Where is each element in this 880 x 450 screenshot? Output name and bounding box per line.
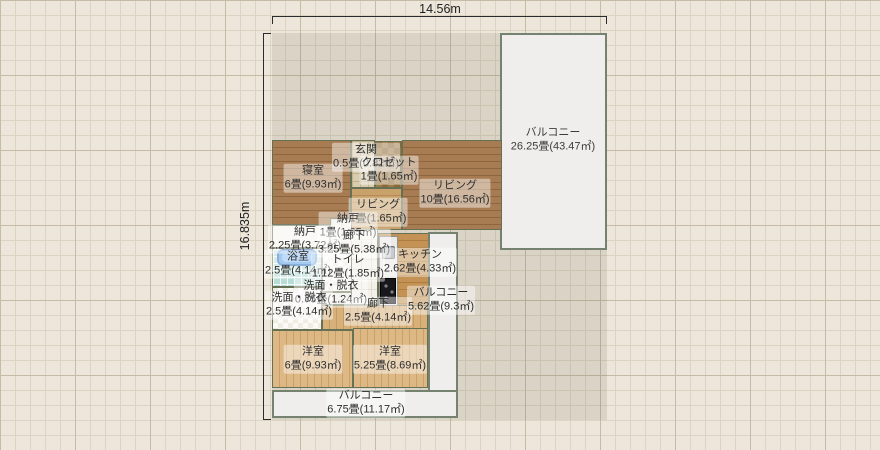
room-name: 納戸 xyxy=(320,212,377,226)
dimension-height-label: 16.835m xyxy=(238,195,252,257)
room-label-balcony-right: バルコニー5.62畳(9.3㎡) xyxy=(407,286,475,315)
room-name: クロゼット xyxy=(361,156,418,170)
room-label-living: リビング10畳(16.56㎡) xyxy=(419,179,490,208)
room-label-kitchen: キッチン2.62畳(4.33㎡) xyxy=(383,248,457,277)
dimension-width-label: 14.56m xyxy=(400,2,480,16)
room-area: 2.62畳(4.33㎡) xyxy=(384,262,456,276)
room-name: バルコニー xyxy=(511,126,595,140)
room-name: バルコニー xyxy=(408,286,474,300)
room-area: 6畳(9.93㎡) xyxy=(285,359,342,373)
room-name: 廊下 xyxy=(345,297,411,311)
room-name: キッチン xyxy=(384,248,456,262)
room-label-balcony-top: バルコニー26.25畳(43.47㎡) xyxy=(510,126,596,155)
room-name: 洋室 xyxy=(354,345,426,359)
room-label-balcony-bottom: バルコニー6.75畳(11.17㎡) xyxy=(326,389,405,418)
room-area: 2.5畳(4.14㎡) xyxy=(266,305,332,319)
room-name: リビング xyxy=(420,179,489,193)
room-area: 5.62畳(9.3㎡) xyxy=(408,300,474,314)
room-area: 1畳(1.65㎡) xyxy=(361,170,418,184)
room-area: 10畳(16.56㎡) xyxy=(420,193,489,207)
room-name: 廊下 xyxy=(318,229,390,243)
room-label-western-1: 洋室6畳(9.93㎡) xyxy=(284,345,343,374)
room-area: 6畳(9.93㎡) xyxy=(285,178,342,192)
room-label-washroom: 洗面・脱衣2.5畳(4.14㎡) xyxy=(265,291,333,320)
room-area: 6.75畳(11.17㎡) xyxy=(327,403,404,417)
room-area: 5.25畳(8.69㎡) xyxy=(354,359,426,373)
room-name: 洗面・脱衣 xyxy=(266,291,332,305)
room-label-closet: クロゼット1畳(1.65㎡) xyxy=(360,156,419,185)
dimension-line-width xyxy=(272,16,607,24)
room-area: 26.25畳(43.47㎡) xyxy=(511,140,595,154)
room-label-hallway-2: 廊下2.5畳(4.14㎡) xyxy=(344,297,412,326)
room-name: リビング xyxy=(350,198,407,212)
floorplan-canvas: { "dimensions": { "width_label": "14.56m… xyxy=(0,0,880,450)
room-name: バルコニー xyxy=(327,389,404,403)
room-name: 洋室 xyxy=(285,345,342,359)
room-name: トイレ xyxy=(312,253,384,267)
room-label-western-2: 洋室5.25畳(8.69㎡) xyxy=(353,345,427,374)
room-area: 2.5畳(4.14㎡) xyxy=(345,311,411,325)
room-label-toilet: トイレ1.12畳(1.85㎡) xyxy=(311,253,385,282)
